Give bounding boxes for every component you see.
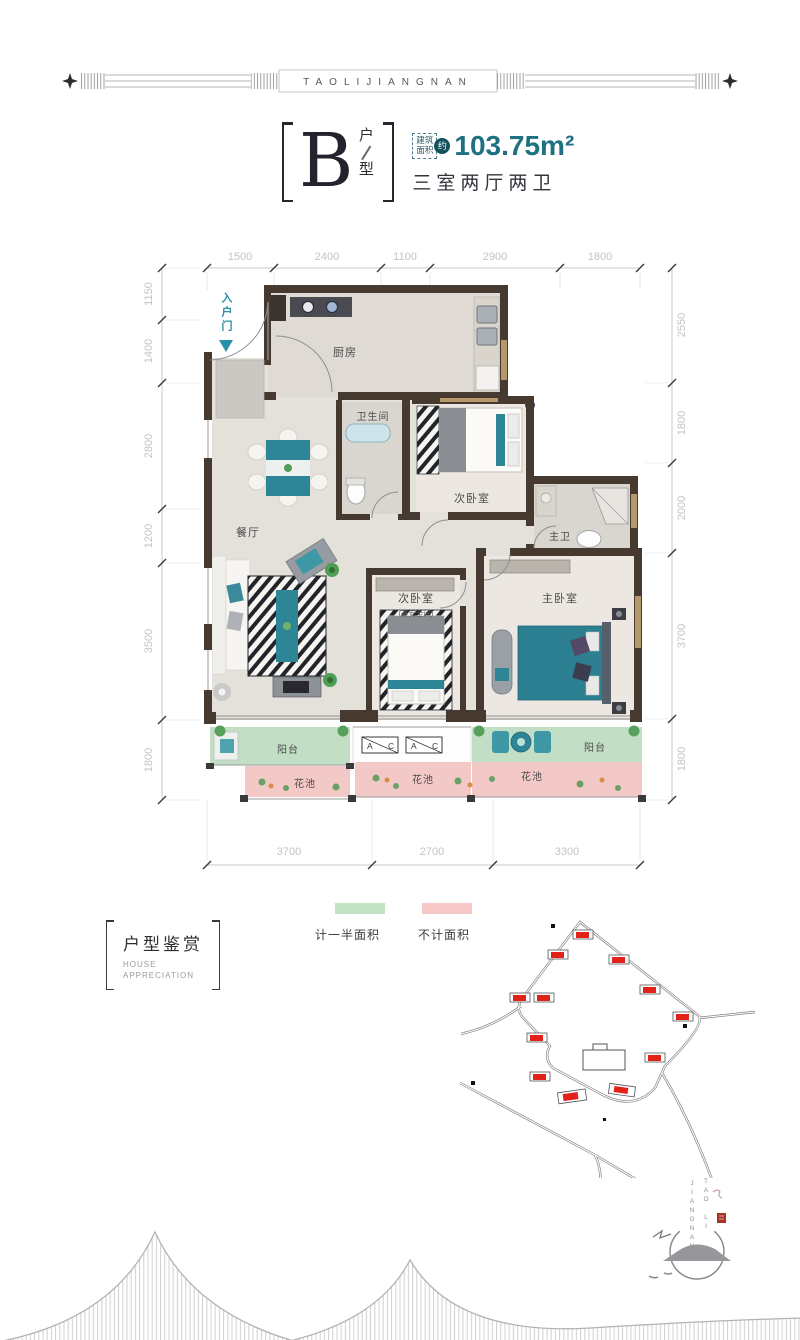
- label-bedroom-mid: 次卧室: [398, 591, 434, 605]
- appreciation-bracket-left: [106, 920, 115, 990]
- area-value: 103.75m²: [454, 130, 574, 162]
- svg-text:1400: 1400: [143, 339, 155, 363]
- logo-script-glyph: [713, 1190, 722, 1198]
- banner-text: TAOLIJIANGNAN: [303, 77, 473, 88]
- brochure-page: TAOLIJIANGNAN B 户 型 建筑 面积 约 103.75m² 三室两…: [0, 0, 800, 1340]
- flower-bed-3-zone: [472, 762, 642, 797]
- svg-text:1500: 1500: [228, 251, 252, 263]
- entry-arrow-icon: [219, 340, 233, 352]
- appreciation-subtitle: HOUSE APPRECIATION: [123, 960, 203, 982]
- banner-cross-left-icon: [62, 73, 78, 89]
- svg-text:1150: 1150: [143, 282, 155, 306]
- svg-text:2800: 2800: [143, 434, 155, 458]
- svg-text:A: A: [411, 741, 417, 751]
- bird-icon: [653, 1231, 671, 1238]
- seal-icon: [717, 1213, 726, 1223]
- svg-text:2550: 2550: [676, 313, 688, 337]
- label-flower-1: 花池: [294, 777, 316, 790]
- entry-mat: [216, 360, 264, 418]
- svg-text:2400: 2400: [315, 251, 339, 263]
- unit-letter: B: [299, 122, 353, 200]
- title-bracket-right: [383, 122, 394, 202]
- label-bedroom-mid-note: (兼安全间): [399, 608, 434, 618]
- entry-label: 入户门: [220, 292, 233, 334]
- svg-text:1200: 1200: [143, 524, 155, 548]
- title-bracket-left: [282, 122, 293, 202]
- svg-text:1800: 1800: [676, 747, 688, 771]
- label-master-bath: 主卫: [549, 531, 571, 543]
- logo-roof-icon: [663, 1245, 731, 1262]
- svg-text:C: C: [388, 741, 394, 751]
- area-approx-badge: 约: [434, 138, 450, 154]
- svg-text:A: A: [367, 741, 373, 751]
- label-balcony-right: 阳台: [584, 741, 606, 754]
- svg-text:C: C: [432, 741, 438, 751]
- svg-text:3500: 3500: [143, 629, 155, 653]
- site-map: [455, 878, 765, 1178]
- area-label-line2: 面积: [416, 146, 433, 156]
- svg-text:3300: 3300: [555, 846, 579, 858]
- svg-text:1800: 1800: [676, 411, 688, 435]
- floorplan: 1500 2400 1100 2900 1800 1150 1400 2800 …: [140, 240, 710, 900]
- legend-half-area-swatch: [335, 903, 385, 914]
- appreciation-block: 户型鉴赏 HOUSE APPRECIATION: [106, 920, 220, 990]
- svg-text:3700: 3700: [277, 846, 301, 858]
- appreciation-title: 户型鉴赏: [123, 930, 203, 955]
- brand-logo: JIANGNAN TAO LI: [635, 1140, 795, 1310]
- svg-text:1800: 1800: [143, 748, 155, 772]
- label-flower-3: 花池: [521, 770, 543, 783]
- logo-text-taoli: TAO LI: [703, 1178, 710, 1232]
- svg-text:1800: 1800: [588, 251, 612, 263]
- unit-type-chars: 户 型: [355, 128, 377, 178]
- svg-text:2900: 2900: [483, 251, 507, 263]
- label-bedroom-ne: 次卧室: [454, 491, 490, 505]
- unit-char-bottom: 型: [359, 162, 374, 178]
- unit-char-top: 户: [359, 128, 374, 144]
- top-banner: TAOLIJIANGNAN: [55, 64, 745, 98]
- label-dining: 餐厅: [236, 525, 260, 539]
- site-buildings: [471, 924, 693, 1121]
- label-kitchen: 厨房: [333, 346, 357, 359]
- label-bathroom: 卫生间: [357, 410, 390, 423]
- label-master-bedroom: 主卧室: [542, 591, 578, 605]
- banner-cross-right-icon: [722, 73, 738, 89]
- svg-text:2700: 2700: [420, 846, 444, 858]
- appreciation-bracket-right: [211, 920, 220, 990]
- floors: [207, 293, 642, 797]
- svg-text:1100: 1100: [393, 251, 417, 263]
- label-balcony-left: 阳台: [277, 743, 299, 756]
- label-flower-2: 花池: [412, 773, 434, 786]
- layout-description: 三室两厅两卫: [412, 168, 574, 195]
- area-row: 建筑 面积 约 103.75m²: [412, 130, 574, 162]
- title-block: B 户 型 建筑 面积 约 103.75m² 三室两厅两卫: [282, 122, 574, 202]
- legend-half-area-label: 计一半面积: [315, 926, 380, 943]
- svg-text:2000: 2000: [676, 496, 688, 520]
- unit-slash: [362, 146, 372, 160]
- svg-text:3700: 3700: [676, 624, 688, 648]
- logo-text-jiangnan: JIANGNAN: [689, 1180, 696, 1252]
- site-center-building: [583, 1044, 625, 1070]
